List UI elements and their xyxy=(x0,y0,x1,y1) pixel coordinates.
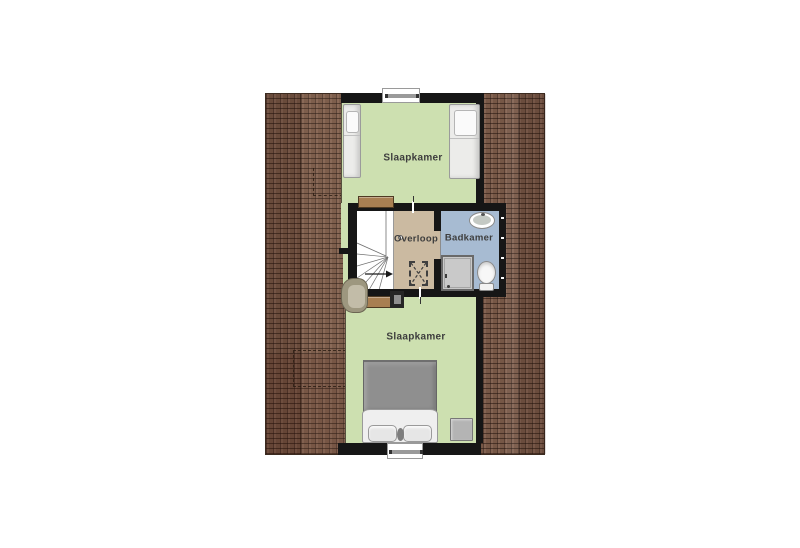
bedroom-top-floor-strip xyxy=(341,203,348,248)
loft-hatch xyxy=(409,261,428,286)
duvet-fold xyxy=(450,138,479,139)
roof-light-band-right xyxy=(506,94,519,454)
window-sash xyxy=(391,450,421,454)
basin-tap xyxy=(481,213,485,216)
wall-tick-4 xyxy=(501,277,504,279)
single-bed-left xyxy=(343,104,361,178)
floorplan-canvas: Slaapkamer Overloop Badkamer Slaapkamer xyxy=(0,0,800,548)
chimney-duct xyxy=(390,291,404,308)
room-label-bathroom: Badkamer xyxy=(445,233,493,244)
roof-clearance-dash-top xyxy=(313,168,343,196)
window-cap xyxy=(389,450,392,454)
window-cap xyxy=(420,450,423,454)
bed-blanket xyxy=(364,362,436,410)
roof-clearance-dash-bottom xyxy=(293,350,346,387)
wall-tick-1 xyxy=(501,217,504,219)
wall-bedroom-bottom-right xyxy=(476,289,483,443)
room-label-bedroom-bottom: Slaapkamer xyxy=(386,332,445,343)
armchair xyxy=(341,278,368,313)
window-cap xyxy=(416,94,419,98)
shower-head xyxy=(445,274,447,278)
toilet-bowl xyxy=(477,261,496,284)
winder-stairs xyxy=(357,210,394,290)
wall-landing-bathroom-upper xyxy=(434,211,441,231)
room-label-landing: Overloop xyxy=(394,234,438,245)
room-label-bedroom-top: Slaapkamer xyxy=(383,153,442,164)
wall-stub-left xyxy=(339,248,356,254)
doorway-top-line xyxy=(413,196,414,202)
pillow-gap xyxy=(397,428,404,441)
single-bed-right xyxy=(449,104,480,179)
roof-shade-band-right xyxy=(520,94,546,454)
window-bottom xyxy=(387,443,423,459)
window-top xyxy=(382,88,420,103)
shower xyxy=(441,255,474,291)
doorway-bottom-line xyxy=(420,297,421,304)
stairs-drawing xyxy=(357,210,394,290)
pillow-left xyxy=(368,425,397,442)
doorway-top-gap xyxy=(412,201,414,213)
armchair-seat xyxy=(348,285,365,308)
window-sash xyxy=(387,94,417,98)
pillow xyxy=(454,110,477,136)
basin-bowl xyxy=(473,215,491,225)
duvet-fold xyxy=(344,135,360,136)
shower-drain xyxy=(447,285,450,288)
wall-tick-3 xyxy=(501,257,504,259)
window-cap xyxy=(385,94,388,98)
stair-direction-arrow xyxy=(386,271,393,278)
nightstand xyxy=(450,418,473,441)
pillow-right xyxy=(403,425,432,442)
double-bed xyxy=(363,360,437,443)
wash-basin xyxy=(469,212,495,229)
pillow xyxy=(346,111,359,133)
chimney-flue xyxy=(394,295,401,304)
wall-landing-bathroom-lower xyxy=(434,259,441,290)
wall-tick-2 xyxy=(501,237,504,239)
toilet-tank xyxy=(479,283,494,291)
desk xyxy=(358,196,394,208)
